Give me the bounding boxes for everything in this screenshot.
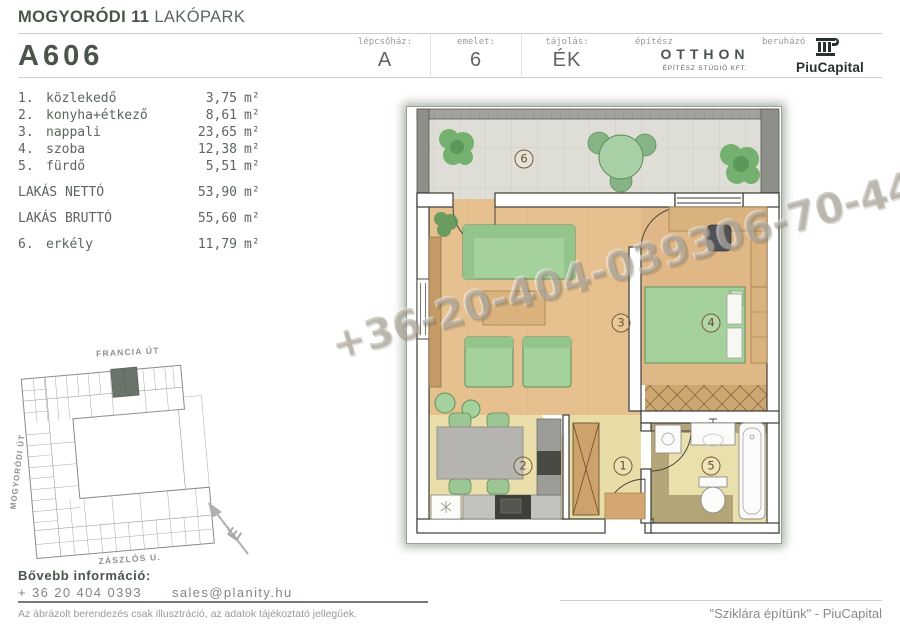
total-gross-row: LAKÁS BRUTTÓ 55,60 m² (18, 210, 268, 227)
room-name: konyha+étkező (46, 107, 187, 124)
room-label-hallway: 1 (614, 457, 633, 476)
architect-name: OTTHON (625, 46, 785, 62)
room-name: erkély (46, 236, 187, 253)
meta-orientation: tájolás: ÉK (521, 34, 612, 77)
footer-email: sales@planity.hu (172, 585, 293, 600)
room-unit: m² (237, 236, 268, 253)
meta-orientation-label: tájolás: (522, 37, 612, 47)
table-row: 1. közlekedő 3,75 m² (18, 90, 268, 107)
street-label-zaszlos: ZÁSZLÓS U. (98, 551, 161, 566)
footer-disclaimer: Az ábrázolt berendezés csak illusztráció… (18, 608, 357, 620)
developer-block: beruházó PiuCapital (762, 34, 884, 77)
unit-code: A606 (18, 40, 103, 73)
footer-divider-right (560, 600, 882, 601)
meta-floor-label: emelet: (431, 37, 521, 47)
room-label-bedroom: 4 (702, 314, 721, 333)
footer-quote: "Sziklára építünk" - PiuCapital (482, 606, 882, 621)
room-name: nappali (46, 124, 187, 141)
footer-divider-left (18, 601, 428, 603)
room-label-balcony: 6 (515, 150, 534, 169)
room-name: fürdő (46, 158, 187, 175)
room-name: közlekedő (46, 90, 187, 107)
room-num: 5. (18, 158, 46, 175)
total-net-row: LAKÁS NETTÓ 53,90 m² (18, 184, 268, 201)
meta-orientation-value: ÉK (522, 49, 612, 72)
project-title: MOGYORÓDI 11 LAKÓPARK (18, 8, 245, 27)
site-plan: FRANCIA ÚT MOGYORÓDI ÚT ZÁSZLÓS U. É (10, 342, 266, 570)
room-label-kitchen: 2 (514, 457, 533, 476)
meta-floor: emelet: 6 (430, 34, 521, 77)
room-unit: m² (237, 90, 268, 107)
table-row: 3. nappali 23,65 m² (18, 124, 268, 141)
room-unit: m² (237, 158, 268, 175)
room-area: 8,61 (187, 107, 237, 124)
street-label-mogyorodi: MOGYORÓDI ÚT (10, 434, 27, 510)
developer-name: PiuCapital (780, 60, 880, 75)
room-num: 3. (18, 124, 46, 141)
total-unit: m² (237, 184, 268, 201)
meta-staircase-label: lépcsőház: (340, 37, 430, 47)
totals-block: LAKÁS NETTÓ 53,90 m² LAKÁS BRUTTÓ 55,60 … (18, 184, 268, 227)
total-label: LAKÁS NETTÓ (18, 184, 187, 201)
room-area: 5,51 (187, 158, 237, 175)
footer-phone: + 36 20 404 0393 (18, 585, 142, 600)
project-title-bold: MOGYORÓDI 11 (18, 8, 149, 26)
room-area: 12,38 (187, 141, 237, 158)
balcony-row: 6. erkély 11,79 m² (18, 236, 268, 253)
table-row: 4. szoba 12,38 m² (18, 141, 268, 158)
meta-staircase-value: A (340, 49, 430, 72)
room-label-bathroom: 5 (702, 457, 721, 476)
unit-meta-row: lépcsőház: A emelet: 6 tájolás: ÉK (340, 34, 612, 77)
header-divider-bottom (18, 77, 882, 78)
architect-block: építész OTTHON ÉPÍTÉSZ STÚDIÓ KFT. (625, 34, 785, 77)
room-unit: m² (237, 124, 268, 141)
room-area: 11,79 (187, 236, 237, 253)
north-letter: É (224, 524, 246, 544)
footer-info-label: Bővebb információ: (18, 568, 151, 583)
total-unit: m² (237, 210, 268, 227)
room-area: 23,65 (187, 124, 237, 141)
room-name: szoba (46, 141, 187, 158)
developer-label: beruházó (762, 37, 805, 47)
footer-contact: + 36 20 404 0393 sales@planity.hu (18, 585, 293, 600)
room-num: 2. (18, 107, 46, 124)
table-row: 2. konyha+étkező 8,61 m² (18, 107, 268, 124)
architect-subtitle: ÉPÍTÉSZ STÚDIÓ KFT. (625, 65, 785, 72)
room-area: 3,75 (187, 90, 237, 107)
north-arrow: É (208, 502, 248, 554)
street-label-francia: FRANCIA ÚT (96, 344, 160, 358)
room-num: 1. (18, 90, 46, 107)
room-num: 4. (18, 141, 46, 158)
piucapital-pillar-icon (814, 36, 840, 58)
table-row: 5. fürdő 5,51 m² (18, 158, 268, 175)
room-unit: m² (237, 141, 268, 158)
room-label-living: 3 (612, 314, 631, 333)
room-num: 6. (18, 236, 46, 253)
total-value: 53,90 (187, 184, 237, 201)
room-unit: m² (237, 107, 268, 124)
project-title-light: LAKÓPARK (149, 8, 245, 26)
total-value: 55,60 (187, 210, 237, 227)
total-label: LAKÁS BRUTTÓ (18, 210, 187, 227)
meta-staircase: lépcsőház: A (340, 34, 430, 77)
meta-floor-value: 6 (431, 49, 521, 72)
room-area-table: 1. közlekedő 3,75 m² 2. konyha+étkező 8,… (18, 90, 268, 253)
